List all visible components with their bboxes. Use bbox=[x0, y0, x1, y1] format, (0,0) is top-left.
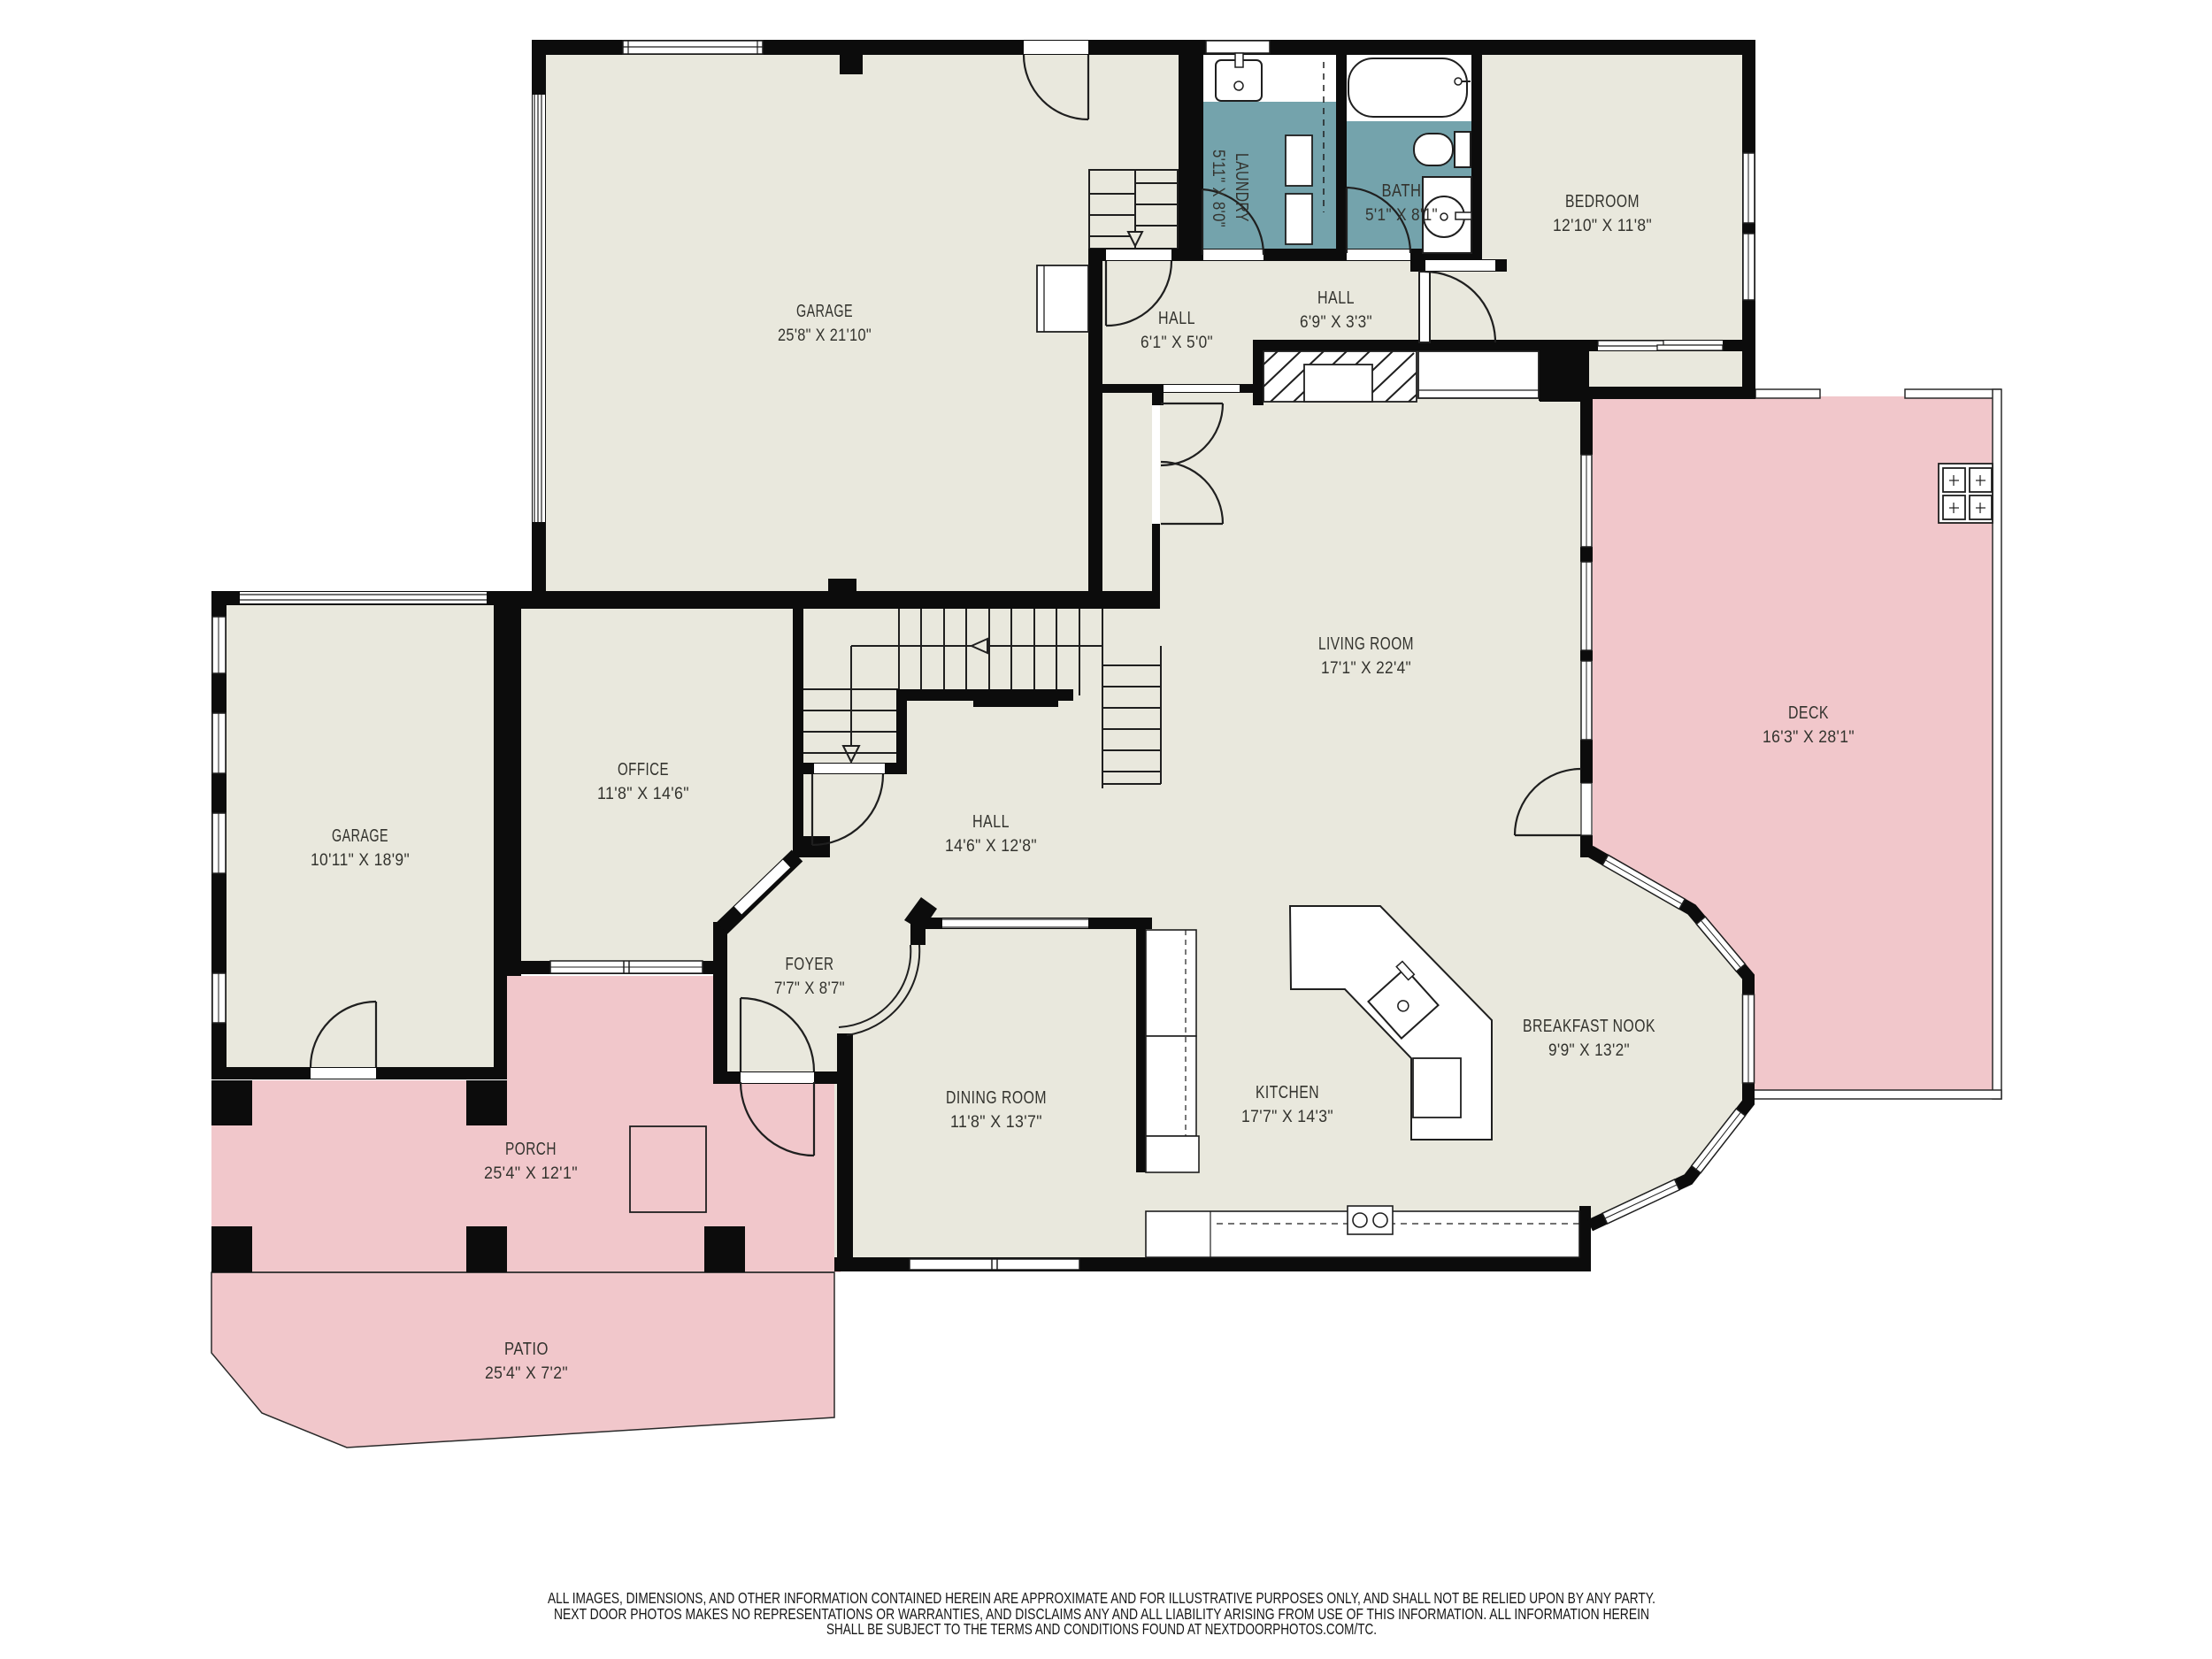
svg-text:16'3" X 28'1": 16'3" X 28'1" bbox=[1763, 727, 1855, 747]
svg-text:6'9" X 3'3": 6'9" X 3'3" bbox=[1300, 312, 1372, 332]
svg-text:6'1" X 5'0": 6'1" X 5'0" bbox=[1141, 333, 1213, 352]
svg-text:LAUNDRY: LAUNDRY bbox=[1232, 153, 1251, 222]
svg-text:OFFICE: OFFICE bbox=[618, 760, 669, 780]
svg-text:25'4" X 12'1": 25'4" X 12'1" bbox=[484, 1164, 578, 1183]
svg-text:HALL: HALL bbox=[1158, 309, 1195, 328]
svg-text:LIVING ROOM: LIVING ROOM bbox=[1318, 634, 1414, 654]
svg-text:5'1" X 8'1": 5'1" X 8'1" bbox=[1365, 205, 1438, 225]
svg-text:GARAGE: GARAGE bbox=[332, 826, 388, 846]
svg-text:KITCHEN: KITCHEN bbox=[1256, 1083, 1319, 1102]
svg-text:5'11" X 8'0": 5'11" X 8'0" bbox=[1209, 150, 1228, 227]
svg-text:DINING ROOM: DINING ROOM bbox=[946, 1088, 1047, 1108]
svg-text:10'11" X 18'9": 10'11" X 18'9" bbox=[311, 850, 410, 870]
svg-text:HALL: HALL bbox=[972, 812, 1010, 832]
svg-text:17'1" X 22'4": 17'1" X 22'4" bbox=[1321, 658, 1411, 678]
svg-text:HALL: HALL bbox=[1317, 288, 1355, 308]
svg-text:9'9" X 13'2": 9'9" X 13'2" bbox=[1548, 1041, 1630, 1060]
svg-text:BATH: BATH bbox=[1382, 181, 1422, 201]
svg-text:11'8" X 13'7": 11'8" X 13'7" bbox=[950, 1112, 1042, 1132]
svg-text:25'4" X 7'2": 25'4" X 7'2" bbox=[485, 1363, 568, 1383]
svg-text:ALL IMAGES, DIMENSIONS, AND OT: ALL IMAGES, DIMENSIONS, AND OTHER INFORM… bbox=[548, 1589, 1655, 1607]
svg-text:11'8" X 14'6": 11'8" X 14'6" bbox=[597, 784, 689, 803]
svg-text:17'7" X 14'3": 17'7" X 14'3" bbox=[1241, 1107, 1333, 1126]
svg-text:25'8" X 21'10": 25'8" X 21'10" bbox=[778, 326, 872, 345]
svg-text:DECK: DECK bbox=[1788, 703, 1829, 723]
svg-text:14'6" X 12'8": 14'6" X 12'8" bbox=[945, 836, 1037, 856]
svg-text:PORCH: PORCH bbox=[505, 1140, 557, 1159]
svg-text:FOYER: FOYER bbox=[786, 955, 834, 974]
svg-text:GARAGE: GARAGE bbox=[796, 302, 853, 321]
svg-text:BREAKFAST NOOK: BREAKFAST NOOK bbox=[1523, 1017, 1655, 1036]
svg-text:PATIO: PATIO bbox=[504, 1340, 549, 1359]
svg-text:7'7" X 8'7": 7'7" X 8'7" bbox=[774, 979, 845, 998]
svg-text:12'10" X 11'8": 12'10" X 11'8" bbox=[1553, 216, 1652, 235]
svg-text:SHALL BE SUBJECT TO THE TERMS: SHALL BE SUBJECT TO THE TERMS AND CONDIT… bbox=[826, 1620, 1377, 1638]
svg-text:BEDROOM: BEDROOM bbox=[1565, 192, 1640, 211]
